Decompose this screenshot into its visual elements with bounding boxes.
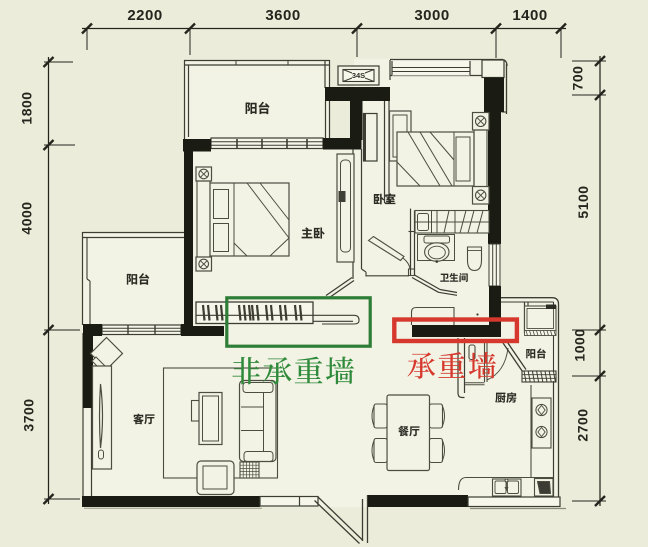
svg-text:3600: 3600 <box>265 7 300 24</box>
svg-text:4000: 4000 <box>19 201 35 234</box>
svg-text:1800: 1800 <box>19 91 35 124</box>
svg-text:700: 700 <box>570 66 586 91</box>
svg-text:2700: 2700 <box>575 408 591 441</box>
svg-text:34S: 34S <box>352 71 365 80</box>
svg-text:2200: 2200 <box>127 7 162 24</box>
svg-text:1000: 1000 <box>572 328 588 361</box>
svg-text:3700: 3700 <box>21 398 37 431</box>
svg-text:3000: 3000 <box>414 7 449 24</box>
svg-text:1400: 1400 <box>512 7 547 24</box>
svg-text:5100: 5100 <box>575 185 591 218</box>
